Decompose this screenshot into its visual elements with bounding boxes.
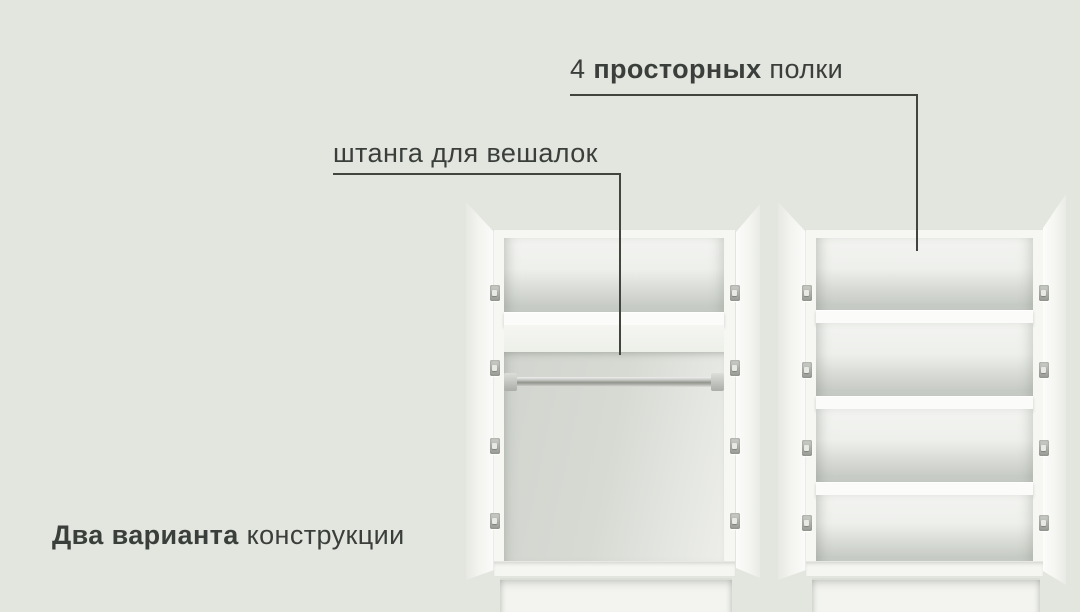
product-infographic: 4 просторных полки штанга для вешалок Дв… <box>0 0 1080 612</box>
label-two-variants: Два варианта конструкции в комплекте <box>52 443 405 612</box>
label-shelf-count-bold: просторных <box>593 54 761 84</box>
plinth-base <box>500 578 732 612</box>
label-hanger-rod-text: штанга для вешалок <box>333 138 598 168</box>
door-hinge <box>802 440 812 456</box>
shelf-1 <box>816 310 1033 324</box>
door-hinge <box>802 362 812 378</box>
rod-bracket-right <box>711 373 724 391</box>
label-two-variants-bold: Два варианта <box>52 520 239 550</box>
door-hinge <box>730 360 740 376</box>
annotation-line-rod-vertical <box>619 173 621 355</box>
compartment-2 <box>816 323 1033 396</box>
hanging-section-back-panel <box>504 352 724 562</box>
shelf-3 <box>816 482 1033 496</box>
door-hinge <box>730 513 740 529</box>
door-hinge <box>730 285 740 301</box>
annotation-line-rod-horizontal <box>333 173 621 175</box>
bottom-board <box>806 561 1043 576</box>
top-compartment <box>504 238 724 312</box>
compartment-4 <box>816 495 1033 562</box>
door-hinge <box>1039 285 1049 301</box>
label-two-variants-line1: Два варианта конструкции <box>52 517 405 554</box>
label-shelf-count-suffix: полки <box>762 54 844 84</box>
label-shelf-count: 4 просторных полки <box>570 54 843 85</box>
door-hinge <box>1039 440 1049 456</box>
compartment-3 <box>816 409 1033 482</box>
compartment-1 <box>816 238 1033 310</box>
plinth-base <box>812 578 1040 612</box>
door-hinge <box>490 438 500 454</box>
door-hinge <box>490 360 500 376</box>
door-hinge <box>802 515 812 531</box>
wardrobe-rod-variant <box>466 188 760 612</box>
cabinet-body <box>806 230 1043 576</box>
door-hinge <box>1039 515 1049 531</box>
rod-bracket-left <box>504 373 517 391</box>
door-hinge <box>802 285 812 301</box>
cabinet-interior <box>504 238 724 562</box>
hanger-rod <box>507 377 721 387</box>
label-shelf-count-prefix: 4 <box>570 54 593 84</box>
door-hinge <box>490 285 500 301</box>
shelf-2 <box>816 396 1033 410</box>
annotation-line-shelves-vertical <box>916 94 918 251</box>
cabinet-interior <box>816 238 1033 562</box>
cabinet-body <box>494 230 735 576</box>
door-hinge <box>1039 362 1049 378</box>
shelf-underside <box>504 325 724 352</box>
top-shelf <box>504 312 724 326</box>
label-two-variants-rest: конструкции <box>239 520 405 550</box>
door-hinge <box>490 513 500 529</box>
wardrobe-shelves-variant <box>778 186 1066 612</box>
label-hanger-rod: штанга для вешалок <box>333 138 598 169</box>
bottom-board <box>494 561 735 576</box>
door-hinge <box>730 438 740 454</box>
annotation-line-shelves-horizontal <box>570 94 918 96</box>
